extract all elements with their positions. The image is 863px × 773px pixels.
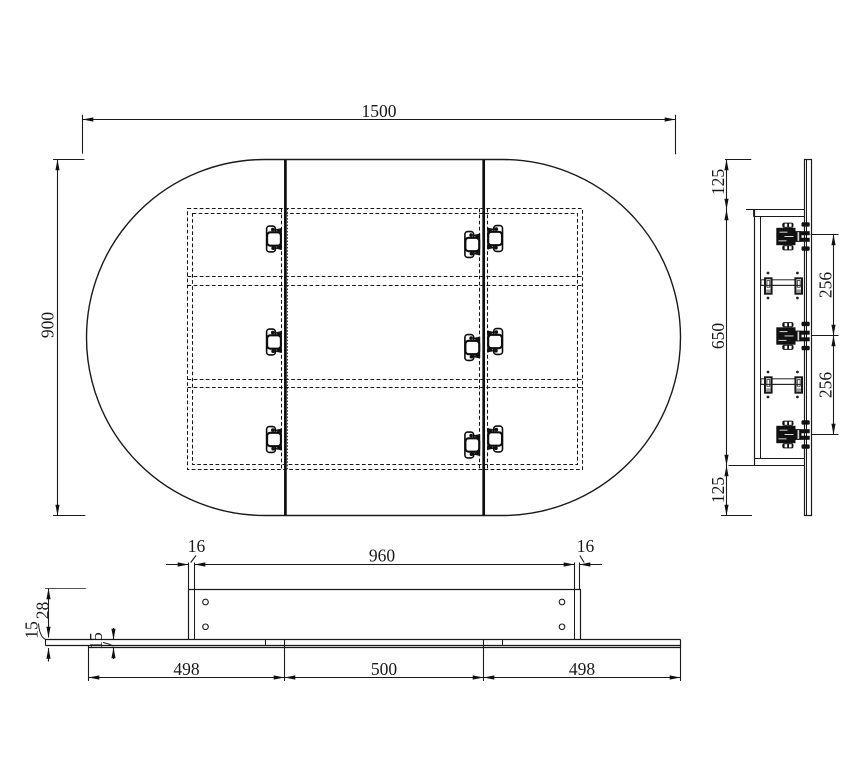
svg-text:900: 900: [37, 312, 57, 339]
svg-text:1500: 1500: [362, 101, 397, 121]
svg-text:498: 498: [173, 659, 200, 679]
svg-text:960: 960: [369, 546, 396, 566]
svg-text:15: 15: [22, 621, 42, 639]
svg-text:28: 28: [33, 602, 53, 620]
svg-text:16: 16: [577, 536, 595, 556]
svg-text:125: 125: [708, 477, 728, 504]
svg-text:500: 500: [371, 659, 398, 679]
svg-text:16: 16: [188, 536, 206, 556]
svg-text:256: 256: [815, 272, 835, 299]
svg-text:125: 125: [708, 169, 728, 196]
svg-text:498: 498: [569, 659, 596, 679]
svg-text:15: 15: [86, 632, 106, 650]
svg-text:256: 256: [815, 372, 835, 399]
svg-text:650: 650: [708, 323, 728, 350]
